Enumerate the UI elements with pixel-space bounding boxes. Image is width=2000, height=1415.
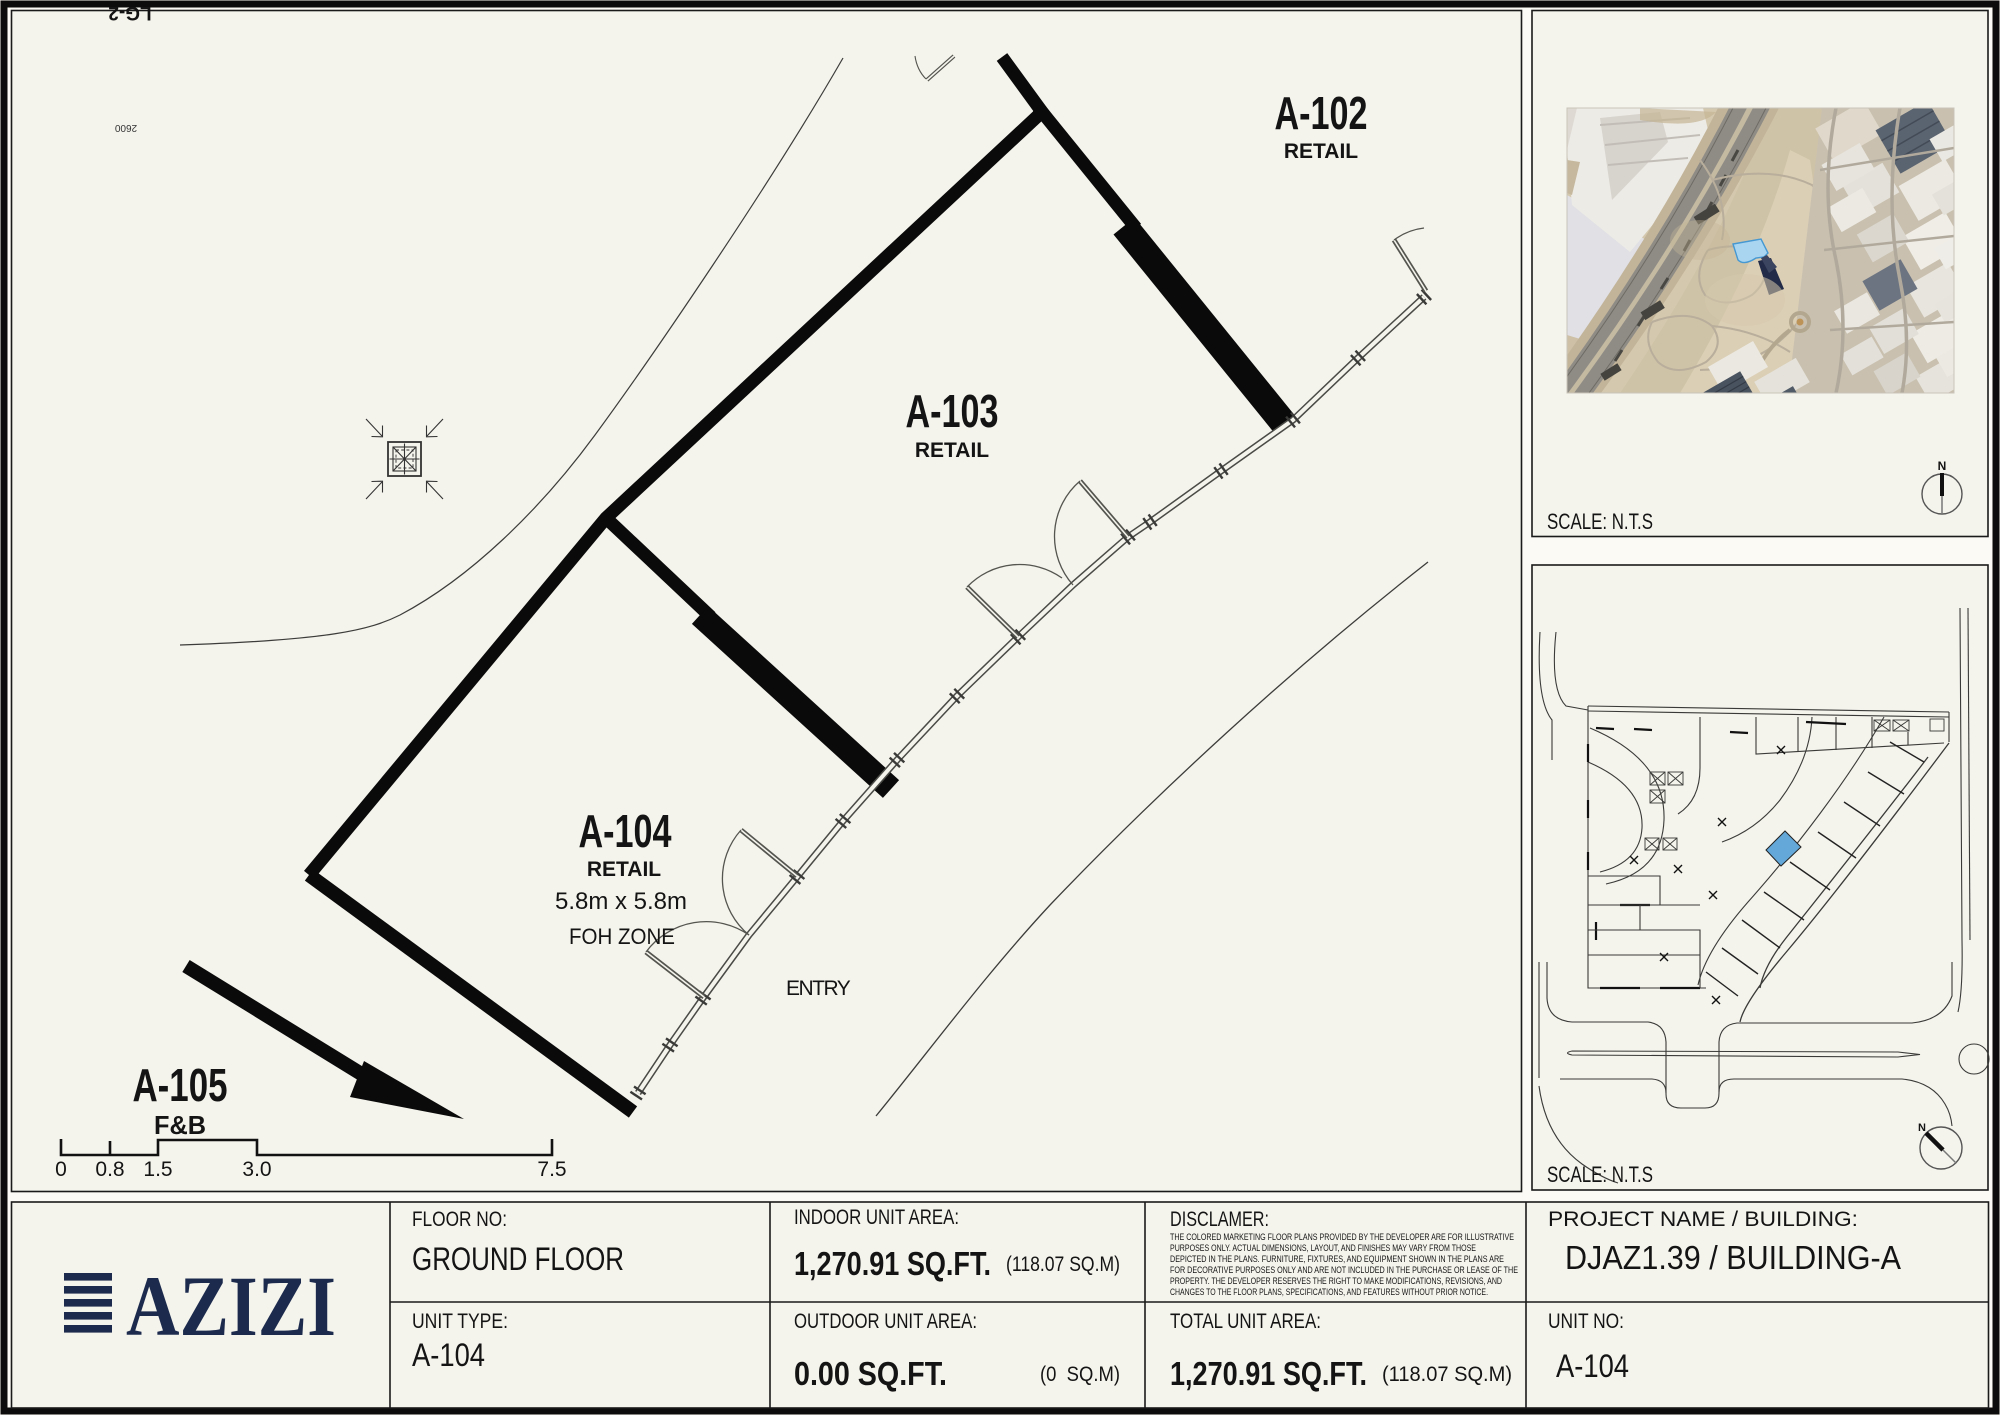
svg-text:1,270.91 SQ.FT.: 1,270.91 SQ.FT. xyxy=(794,1245,991,1282)
svg-text:(118.07 SQ.M): (118.07 SQ.M) xyxy=(1006,1253,1120,1276)
svg-text:SCALE: N.T.S: SCALE: N.T.S xyxy=(1547,1162,1653,1187)
svg-text:ENTRY: ENTRY xyxy=(786,977,852,1000)
svg-text:SCALE: N.T.S: SCALE: N.T.S xyxy=(1547,509,1653,534)
svg-text:(0 SQ.M): (0 SQ.M) xyxy=(1040,1363,1120,1386)
svg-text:7.5: 7.5 xyxy=(537,1158,566,1181)
svg-text:N: N xyxy=(1918,1122,1926,1134)
svg-text:0: 0 xyxy=(55,1158,67,1181)
svg-text:DEPICTED IN THE PLANS. FURNITU: DEPICTED IN THE PLANS. FURNITURE, FIXTUR… xyxy=(1170,1254,1504,1264)
svg-text:DJAZ1.39 / BUILDING-A: DJAZ1.39 / BUILDING-A xyxy=(1565,1239,1901,1276)
svg-text:A-105: A-105 xyxy=(133,1059,228,1111)
svg-text:5.8m x 5.8m: 5.8m x 5.8m xyxy=(555,888,687,915)
svg-text:AZIZI: AZIZI xyxy=(126,1258,336,1354)
svg-text:0.8: 0.8 xyxy=(95,1158,124,1181)
svg-text:RETAIL: RETAIL xyxy=(587,858,661,881)
svg-text:A-102: A-102 xyxy=(1275,87,1368,139)
svg-text:CHANGES TO THE FLOOR PLANS, SP: CHANGES TO THE FLOOR PLANS, SPECIFICATIO… xyxy=(1170,1287,1488,1297)
svg-text:1.5: 1.5 xyxy=(143,1158,172,1181)
svg-text:PROPERTY. THE DEVELOPER RESERV: PROPERTY. THE DEVELOPER RESERVES THE RIG… xyxy=(1170,1276,1502,1286)
svg-text:UNIT NO:: UNIT NO: xyxy=(1548,1310,1624,1333)
svg-text:TOTAL UNIT AREA:: TOTAL UNIT AREA: xyxy=(1170,1310,1321,1333)
svg-text:FOH ZONE: FOH ZONE xyxy=(569,924,675,949)
svg-text:F&B: F&B xyxy=(154,1110,206,1140)
svg-text:N: N xyxy=(1938,459,1947,473)
svg-text:OUTDOOR UNIT AREA:: OUTDOOR UNIT AREA: xyxy=(794,1310,977,1333)
svg-text:UNIT TYPE:: UNIT TYPE: xyxy=(412,1310,508,1333)
svg-text:PURPOSES ONLY. ACTUAL DIMENSIO: PURPOSES ONLY. ACTUAL DIMENSIONS, LAYOUT… xyxy=(1170,1243,1476,1253)
svg-text:2600: 2600 xyxy=(114,122,137,133)
svg-text:PROJECT NAME / BUILDING:: PROJECT NAME / BUILDING: xyxy=(1548,1208,1858,1231)
svg-text:LG-2: LG-2 xyxy=(108,2,151,23)
svg-text:FOR DECORATIVE PURPOSES ONLY A: FOR DECORATIVE PURPOSES ONLY AND ARE NOT… xyxy=(1170,1265,1518,1275)
svg-text:THE COLORED MARKETING FLOOR PL: THE COLORED MARKETING FLOOR PLANS PROVID… xyxy=(1170,1232,1514,1242)
svg-text:A-103: A-103 xyxy=(906,385,999,437)
svg-text:RETAIL: RETAIL xyxy=(915,439,989,462)
svg-text:DISCLAMER:: DISCLAMER: xyxy=(1170,1208,1269,1231)
svg-text:INDOOR UNIT AREA:: INDOOR UNIT AREA: xyxy=(794,1206,959,1229)
svg-text:A-104: A-104 xyxy=(412,1337,485,1373)
svg-text:FLOOR NO:: FLOOR NO: xyxy=(412,1208,507,1231)
svg-text:(118.07 SQ.M): (118.07 SQ.M) xyxy=(1382,1363,1512,1386)
svg-text:1,270.91 SQ.FT.: 1,270.91 SQ.FT. xyxy=(1170,1355,1367,1392)
svg-text:RETAIL: RETAIL xyxy=(1284,140,1358,163)
svg-text:GROUND FLOOR: GROUND FLOOR xyxy=(412,1241,624,1277)
svg-text:A-104: A-104 xyxy=(579,805,672,857)
svg-text:3.0: 3.0 xyxy=(242,1158,271,1181)
svg-text:A-104: A-104 xyxy=(1556,1348,1629,1384)
svg-text:0.00 SQ.FT.: 0.00 SQ.FT. xyxy=(794,1355,947,1392)
